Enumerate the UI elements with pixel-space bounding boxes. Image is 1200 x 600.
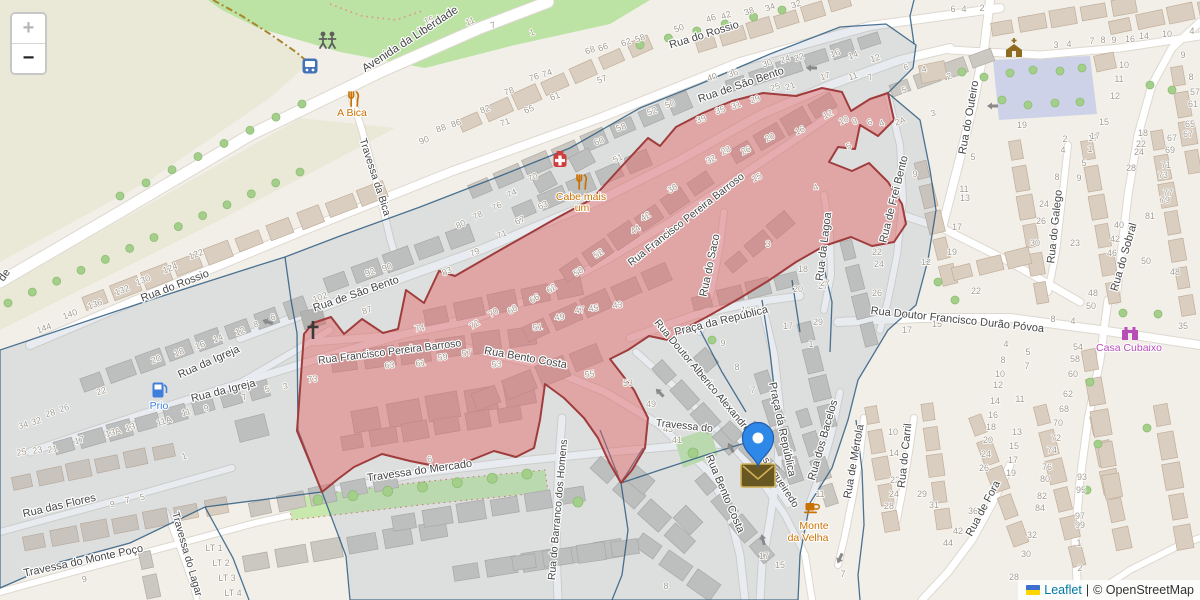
- house-number: 99: [1075, 520, 1085, 530]
- tree-icon: [298, 100, 306, 108]
- house-number: 73: [307, 373, 318, 384]
- house-number: 11: [1114, 74, 1123, 84]
- house-number: 81: [1145, 211, 1155, 221]
- house-number: 8: [1188, 72, 1193, 82]
- house-number: 8: [1100, 35, 1105, 45]
- house-number: 1: [808, 339, 813, 349]
- house-number: 45: [588, 302, 599, 313]
- tree-icon: [53, 277, 61, 285]
- house-number: 42: [1110, 234, 1120, 244]
- house-number: 2: [1062, 134, 1067, 144]
- poi-label: Prio: [150, 400, 169, 412]
- house-number: 9: [720, 338, 725, 348]
- house-number: 19: [947, 247, 957, 257]
- tree-icon: [951, 296, 959, 304]
- building: [923, 426, 940, 451]
- house-number: LT 4: [224, 588, 241, 598]
- house-number: 4: [1070, 316, 1075, 326]
- house-number: 53: [491, 358, 502, 369]
- house-number: 29: [917, 489, 927, 499]
- tree-icon: [1056, 67, 1064, 75]
- poi-label: da Velha: [788, 532, 829, 544]
- tree-icon: [958, 68, 966, 76]
- house-number: 2: [1077, 563, 1082, 573]
- house-number: 9: [1180, 50, 1185, 60]
- house-number: 55: [584, 368, 595, 379]
- house-number: 30: [1030, 238, 1040, 248]
- house-number: LT 1: [205, 543, 222, 553]
- tree-icon: [1024, 101, 1032, 109]
- house-number: 26: [872, 288, 882, 298]
- tree-icon: [1086, 378, 1094, 386]
- house-number: 35: [1178, 321, 1188, 331]
- tree-icon: [487, 473, 497, 483]
- tree-icon: [194, 153, 202, 161]
- tree-icon: [168, 166, 176, 174]
- house-number: 12: [993, 380, 1003, 390]
- house-number: 12: [921, 257, 931, 267]
- house-number: 7: [840, 569, 845, 579]
- tree-icon: [247, 190, 255, 198]
- house-number: 71: [1161, 160, 1171, 170]
- house-number: 16: [1125, 34, 1135, 44]
- tree-icon: [116, 192, 124, 200]
- tree-icon: [28, 288, 36, 296]
- house-number: 7: [750, 385, 755, 395]
- house-number: 11: [1015, 394, 1024, 404]
- tree-icon: [1168, 86, 1176, 94]
- house-number: 23: [1070, 238, 1080, 248]
- house-number: 62: [1063, 389, 1073, 399]
- house-number: 3: [1053, 40, 1058, 50]
- tree-icon: [199, 212, 207, 220]
- house-number: 17: [1090, 131, 1100, 141]
- house-number: 54: [1073, 342, 1083, 352]
- house-number: 18: [1138, 128, 1148, 138]
- house-number: LT 2: [212, 558, 229, 568]
- house-number: 18: [798, 264, 808, 274]
- tree-icon: [1143, 424, 1151, 432]
- house-number: 17: [759, 551, 769, 561]
- house-number: 65: [1185, 119, 1195, 129]
- house-number: 80: [1040, 474, 1050, 484]
- house-number: 5: [1081, 158, 1086, 168]
- house-number: 76: [1042, 462, 1052, 472]
- house-number: 14: [1139, 31, 1149, 41]
- tree-icon: [708, 336, 716, 344]
- house-number: 74: [1047, 445, 1057, 455]
- house-number: 8: [734, 362, 739, 372]
- house-number: 68: [1059, 404, 1069, 414]
- house-number: 74: [414, 322, 426, 334]
- tree-icon: [174, 223, 182, 231]
- house-number: 2: [979, 3, 984, 13]
- house-number: 31: [929, 500, 939, 510]
- house-number: 46: [1107, 248, 1117, 258]
- house-number: 17: [1008, 455, 1018, 465]
- house-number: 67: [1167, 133, 1177, 143]
- house-number: 28: [1126, 163, 1136, 173]
- zoom-out-button[interactable]: −: [12, 43, 45, 73]
- house-number: 4: [1066, 39, 1071, 49]
- tree-icon: [688, 448, 698, 458]
- house-number: 1: [1076, 538, 1081, 548]
- house-number: 15: [1099, 117, 1109, 127]
- house-number: 30: [1021, 549, 1031, 559]
- house-number: 49: [554, 311, 565, 322]
- house-number: 41: [672, 435, 682, 445]
- building: [865, 406, 880, 425]
- tree-icon: [1006, 69, 1014, 77]
- house-number: 29: [813, 317, 823, 327]
- house-number: 59: [437, 351, 448, 362]
- house-number: 93: [1077, 472, 1087, 482]
- house-number: 48: [1088, 288, 1098, 298]
- house-number: LT 3: [218, 573, 235, 583]
- house-number: 50: [1086, 301, 1096, 311]
- tree-icon: [1094, 440, 1102, 448]
- house-number: 8: [1000, 355, 1005, 365]
- tree-icon: [778, 6, 786, 14]
- house-number: 12: [1110, 91, 1120, 101]
- house-number: 22: [971, 286, 981, 296]
- tree-icon: [296, 168, 304, 176]
- zoom-control: + −: [10, 12, 47, 75]
- house-number: 10: [888, 427, 898, 437]
- house-number: 67: [1183, 129, 1193, 139]
- tree-icon: [150, 234, 158, 242]
- attribution-bar: Leaflet | © OpenStreetMap: [1018, 580, 1200, 600]
- house-number: 72: [1051, 433, 1061, 443]
- house-number: 79: [1160, 195, 1170, 205]
- house-number: 13: [960, 193, 970, 203]
- house-number: 49: [646, 399, 656, 409]
- house-number: 20: [983, 435, 993, 445]
- house-number: 53: [623, 378, 633, 388]
- house-number: 11: [815, 489, 824, 499]
- house-number: 4: [1003, 339, 1008, 349]
- house-number: 24: [889, 489, 899, 499]
- house-number: 82: [1037, 491, 1047, 501]
- house-number: 50: [1141, 256, 1151, 266]
- house-number: 69: [1165, 145, 1175, 155]
- house-number: 14: [990, 396, 1000, 406]
- house-number: 5: [1025, 347, 1030, 357]
- house-number: 15: [775, 560, 785, 570]
- house-number: 6: [950, 4, 955, 14]
- openstreetmap-link[interactable]: © OpenStreetMap: [1093, 583, 1194, 597]
- house-number: 4: [1060, 145, 1065, 155]
- house-number: 47: [574, 304, 585, 315]
- house-number: 44: [943, 538, 953, 548]
- house-number: 7: [1089, 36, 1094, 46]
- house-number: 61: [415, 357, 426, 368]
- tree-icon: [418, 482, 428, 492]
- tree-icon: [126, 244, 134, 252]
- house-number: 26: [1036, 216, 1046, 226]
- house-number: 7: [1024, 361, 1029, 371]
- house-number: 24: [1134, 147, 1144, 157]
- house-number: 16: [988, 410, 998, 420]
- house-number: 5: [970, 152, 975, 162]
- tree-icon: [1076, 98, 1084, 106]
- house-number: 32: [1027, 530, 1037, 540]
- house-number: 22: [872, 247, 882, 257]
- house-number: 14: [889, 448, 899, 458]
- house-number: 57: [461, 347, 472, 358]
- house-number: 8: [663, 581, 668, 591]
- tree-icon: [313, 495, 323, 505]
- house-number: 9: [1076, 173, 1081, 183]
- house-number: 18: [986, 422, 996, 432]
- building: [1102, 473, 1123, 500]
- tree-icon: [1146, 81, 1154, 89]
- house-number: 57: [1190, 87, 1200, 97]
- attribution-separator: |: [1086, 583, 1089, 597]
- house-number: 70: [1053, 418, 1063, 428]
- building: [926, 453, 945, 477]
- tree-icon: [573, 497, 583, 507]
- house-number: 23: [31, 444, 43, 456]
- house-number: 17: [952, 222, 962, 232]
- ukraine-flag-icon: [1026, 585, 1040, 595]
- house-number: 17: [783, 321, 793, 331]
- leaflet-link[interactable]: Leaflet: [1044, 583, 1082, 597]
- poi-label: Monte: [799, 520, 828, 532]
- building: [872, 456, 892, 480]
- house-number: 84: [1035, 503, 1045, 513]
- tree-icon: [452, 478, 462, 488]
- house-number: 9: [912, 169, 917, 179]
- building: [934, 508, 952, 530]
- poi-label: Casa Cubaixo: [1096, 342, 1162, 354]
- house-number: 60: [1068, 369, 1078, 379]
- house-number: 17: [902, 325, 912, 335]
- house-number: 9: [1111, 35, 1116, 45]
- house-number: 40: [1114, 220, 1124, 230]
- tree-icon: [223, 201, 231, 209]
- tree-icon: [980, 73, 988, 81]
- tree-icon: [272, 113, 280, 121]
- tree-icon: [998, 96, 1006, 104]
- house-number: 28: [884, 501, 894, 511]
- tree-icon: [101, 255, 109, 263]
- house-number: 61: [1188, 99, 1198, 109]
- tree-icon: [1078, 64, 1086, 72]
- tree-icon: [348, 491, 358, 501]
- house-number: 19: [1006, 468, 1016, 478]
- house-number: 24: [981, 449, 991, 459]
- tree-icon: [4, 299, 12, 307]
- tree-icon: [272, 179, 280, 187]
- house-number: 20: [793, 284, 803, 294]
- tree-icon: [1154, 310, 1162, 318]
- building: [921, 403, 935, 422]
- poi-label: A Bica: [337, 107, 367, 119]
- house-number: 1: [1087, 144, 1092, 154]
- house-number: 95: [1076, 485, 1086, 495]
- house-number: 25: [15, 446, 27, 458]
- poi-label: um: [575, 202, 590, 214]
- house-number: 73: [1158, 170, 1168, 180]
- tree-icon: [522, 469, 532, 479]
- tree-icon: [934, 278, 942, 286]
- house-number: 4: [961, 4, 966, 14]
- house-number: 26: [979, 463, 989, 473]
- building: [882, 510, 900, 532]
- house-number: 13: [1012, 427, 1022, 437]
- house-number: 10: [995, 369, 1005, 379]
- map-window: 1221241301321361401444642383432505862666…: [0, 0, 1200, 600]
- house-number: 24: [874, 259, 884, 269]
- zoom-in-button[interactable]: +: [12, 14, 45, 43]
- house-number: 51: [532, 321, 543, 332]
- house-number: 8: [1050, 314, 1055, 324]
- building: [1173, 524, 1194, 551]
- house-number: 19: [1017, 120, 1027, 130]
- house-number: 21: [46, 443, 58, 455]
- house-number: 24: [1039, 199, 1049, 209]
- bus-stop-icon: [303, 59, 318, 74]
- tree-icon: [1029, 66, 1037, 74]
- map-canvas[interactable]: 1221241301321361401444642383432505862666…: [0, 0, 1200, 600]
- house-number: 48: [1170, 267, 1180, 277]
- tree-icon: [220, 139, 228, 147]
- house-number: 43: [612, 299, 623, 310]
- tree-icon: [1119, 309, 1127, 317]
- tree-icon: [246, 126, 254, 134]
- house-number: 58: [1070, 354, 1080, 364]
- tree-icon: [77, 266, 85, 274]
- house-number: 10: [1119, 60, 1129, 70]
- house-number: 63: [384, 359, 395, 370]
- house-number: 8: [1054, 172, 1059, 182]
- house-number: 3: [765, 239, 770, 249]
- house-number: 42: [953, 526, 963, 536]
- tree-icon: [1051, 99, 1059, 107]
- house-number: 10: [1162, 29, 1172, 39]
- house-number: 15: [1009, 441, 1019, 451]
- building: [1179, 294, 1196, 316]
- tree-icon: [142, 179, 150, 187]
- tree-icon: [383, 486, 393, 496]
- house-number: 4: [1189, 26, 1194, 36]
